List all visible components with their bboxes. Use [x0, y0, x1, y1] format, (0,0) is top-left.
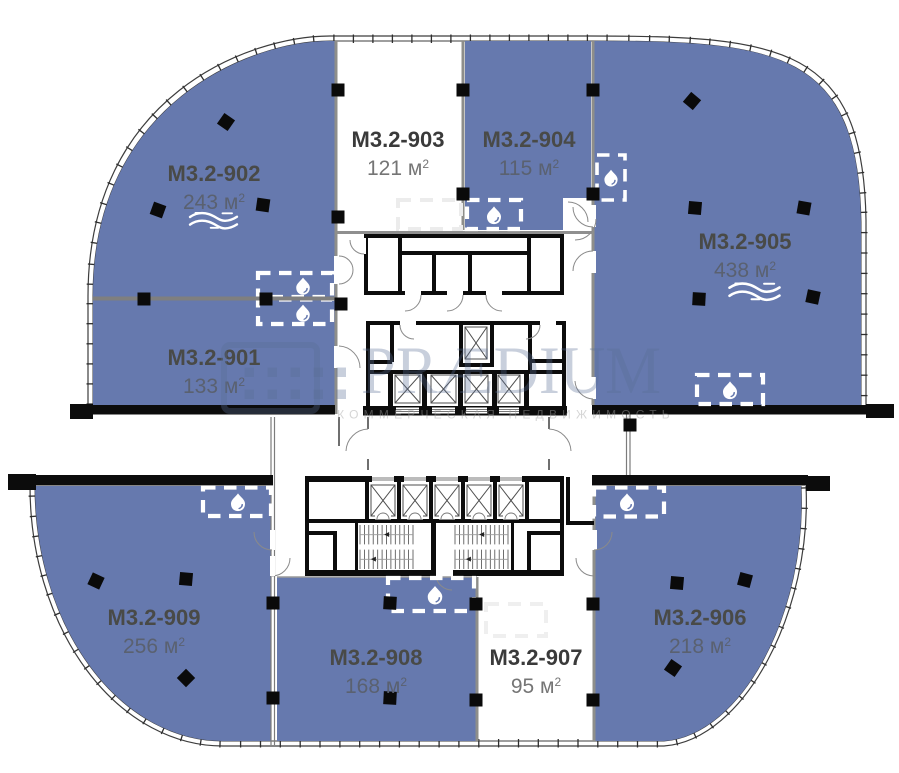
svg-text:M3.2-904: M3.2-904 — [483, 127, 577, 152]
svg-text:218 м2: 218 м2 — [669, 635, 731, 658]
svg-text:95 м2: 95 м2 — [511, 675, 562, 698]
svg-text:133 м2: 133 м2 — [183, 375, 245, 398]
svg-text:115 м2: 115 м2 — [499, 157, 560, 180]
svg-text:M3.2-908: M3.2-908 — [330, 645, 423, 670]
svg-text:243 м2: 243 м2 — [183, 191, 245, 214]
svg-text:КОММЕРЧЕСКАЯ НЕДВИЖИМОСТЬ: КОММЕРЧЕСКАЯ НЕДВИЖИМОСТЬ — [337, 408, 675, 422]
svg-text:M3.2-909: M3.2-909 — [108, 605, 201, 630]
svg-text:M3.2-907: M3.2-907 — [490, 645, 583, 670]
svg-text:M3.2-903: M3.2-903 — [352, 127, 445, 152]
svg-text:438 м2: 438 м2 — [714, 259, 776, 282]
svg-text:M3.2-905: M3.2-905 — [699, 229, 792, 254]
svg-text:121 м2: 121 м2 — [367, 157, 429, 180]
svg-text:M3.2-901: M3.2-901 — [168, 345, 261, 370]
svg-text:168 м2: 168 м2 — [345, 675, 407, 698]
svg-text:M3.2-902: M3.2-902 — [168, 161, 261, 186]
svg-text:PRÆDIUM: PRÆDIUM — [361, 332, 661, 408]
svg-text:M3.2-906: M3.2-906 — [654, 605, 747, 630]
svg-text:256 м2: 256 м2 — [123, 635, 185, 658]
